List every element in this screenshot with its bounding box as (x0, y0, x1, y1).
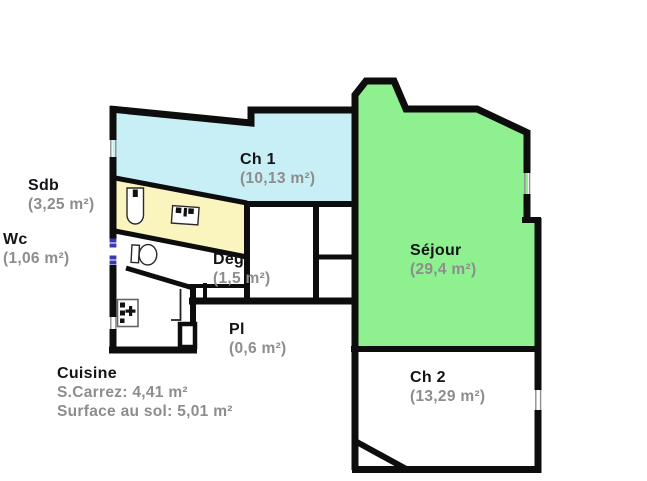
room-label-wc: Wc (1,06 m²) (3, 230, 69, 268)
kitchen-flue-line (171, 289, 181, 320)
label-name: Ch 2 (410, 368, 485, 387)
window-left-kitchen (111, 317, 116, 329)
label-area: (13,29 m²) (410, 387, 485, 406)
label-name: Dég (213, 250, 271, 269)
label-area: (0,6 m²) (229, 339, 287, 358)
label-area: (29,4 m²) (410, 260, 476, 279)
label-name: Pl (229, 320, 287, 339)
label-name: Sdb (28, 176, 94, 195)
label-area: (1,06 m²) (3, 249, 69, 268)
room-label-sejour: Séjour (29,4 m²) (410, 241, 476, 279)
label-floor-surface: Surface au sol: 5,01 m² (57, 402, 233, 421)
window-left-wc (110, 239, 117, 265)
label-name: Cuisine (57, 364, 233, 383)
room-label-sdb: Sdb (3,25 m²) (28, 176, 94, 214)
duct-box (180, 324, 195, 347)
label-name: Ch 1 (240, 150, 315, 169)
room-label-ch2: Ch 2 (13,29 m²) (410, 368, 485, 406)
room-sejour-fill (355, 81, 538, 346)
label-name: Séjour (410, 241, 476, 260)
room-label-deg: Dég (1,5 m²) (213, 250, 271, 288)
room-label-ch1: Ch 1 (10,13 m²) (240, 150, 315, 188)
label-area: (10,13 m²) (240, 169, 315, 188)
toilet-icon (131, 244, 157, 266)
bathtub-icon (127, 188, 144, 224)
floor-plan: Sdb (3,25 m²) Wc (1,06 m²) Ch 1 (10,13 m… (0, 0, 647, 481)
label-area: (3,25 m²) (28, 195, 94, 214)
window-right-ch2 (536, 390, 541, 410)
label-name: Wc (3, 230, 69, 249)
room-label-pl: Pl (0,6 m²) (229, 320, 287, 358)
kitchen-sink-icon (118, 300, 139, 327)
room-label-cuisine: Cuisine S.Carrez: 4,41 m² Surface au sol… (57, 364, 233, 421)
washbasin-icon (171, 206, 199, 225)
label-area: (1,5 m²) (213, 269, 271, 288)
label-carrez: S.Carrez: 4,41 m² (57, 383, 233, 402)
